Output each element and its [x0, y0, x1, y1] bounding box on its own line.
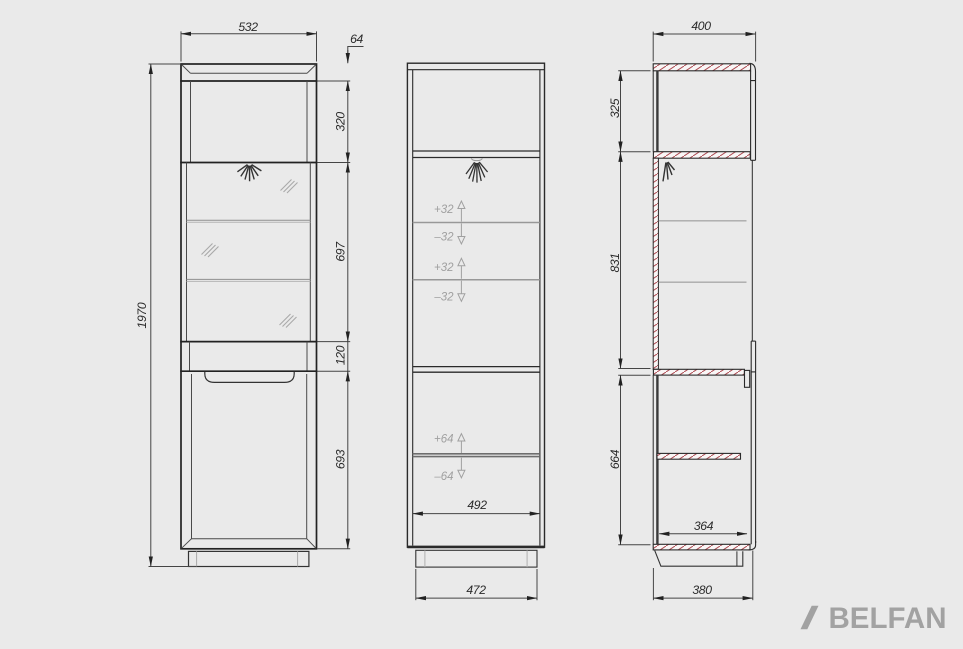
- svg-text:BELFAN: BELFAN: [829, 602, 947, 635]
- svg-text:120: 120: [333, 345, 347, 365]
- svg-text:325: 325: [608, 98, 622, 118]
- svg-text:+32: +32: [434, 262, 454, 274]
- svg-text:664: 664: [608, 449, 622, 469]
- svg-text:364: 364: [694, 519, 714, 533]
- svg-text:380: 380: [692, 583, 712, 597]
- svg-text:–32: –32: [433, 292, 454, 304]
- svg-text:–64: –64: [433, 471, 453, 483]
- svg-text:+32: +32: [434, 204, 454, 216]
- svg-text:693: 693: [333, 449, 347, 469]
- svg-text:532: 532: [238, 20, 258, 34]
- svg-text:64: 64: [350, 32, 363, 46]
- svg-text:–32: –32: [433, 232, 454, 244]
- svg-text:472: 472: [466, 583, 486, 597]
- svg-text:697: 697: [333, 241, 347, 262]
- svg-text:492: 492: [467, 498, 487, 512]
- svg-text:1970: 1970: [135, 302, 149, 328]
- svg-text:+64: +64: [434, 434, 454, 446]
- svg-text:400: 400: [691, 19, 711, 33]
- svg-text:320: 320: [333, 112, 347, 132]
- svg-text:831: 831: [608, 253, 622, 272]
